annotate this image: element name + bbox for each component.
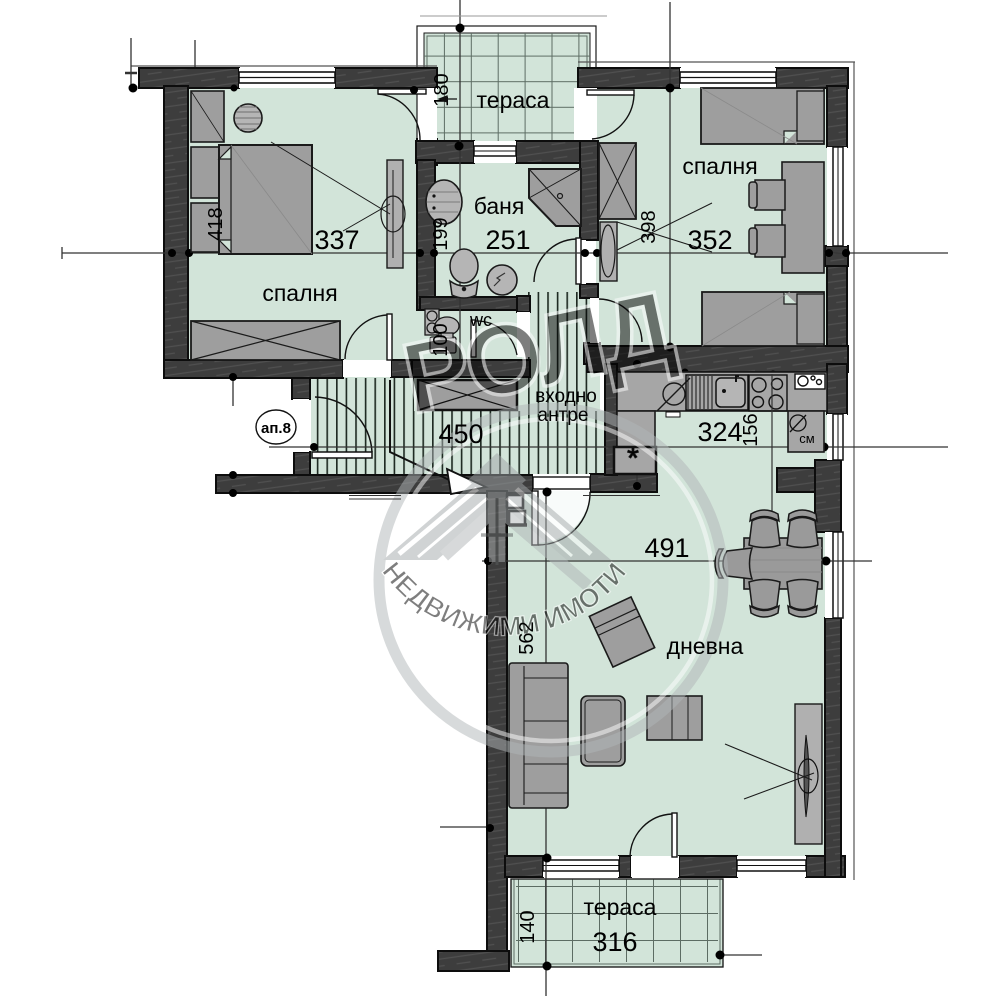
svg-text:100: 100: [430, 323, 452, 356]
svg-text:398: 398: [638, 210, 660, 243]
svg-text:156: 156: [740, 413, 762, 446]
svg-text:см: см: [799, 431, 815, 446]
svg-text:антре: антре: [538, 405, 589, 426]
svg-text:450: 450: [438, 419, 483, 449]
svg-text:180: 180: [431, 73, 453, 106]
svg-text:562: 562: [516, 621, 538, 654]
svg-text:*: *: [627, 442, 639, 475]
svg-text:251: 251: [485, 225, 530, 255]
svg-text:324: 324: [697, 417, 742, 447]
svg-text:дневна: дневна: [667, 633, 744, 659]
svg-text:wc: wc: [469, 310, 492, 330]
svg-text:спалня: спалня: [262, 280, 337, 306]
svg-text:352: 352: [687, 225, 732, 255]
svg-text:418: 418: [205, 207, 227, 240]
svg-text:491: 491: [644, 533, 689, 563]
svg-text:199: 199: [430, 217, 452, 250]
svg-text:140: 140: [517, 910, 539, 943]
svg-text:баня: баня: [474, 193, 525, 219]
svg-text:тераса: тераса: [477, 87, 550, 113]
svg-text:спалня: спалня: [682, 153, 757, 179]
svg-text:316: 316: [592, 927, 637, 957]
svg-text:тераса: тераса: [584, 894, 657, 920]
svg-text:ап.8: ап.8: [261, 420, 291, 437]
svg-text:входно: входно: [535, 386, 597, 407]
svg-text:337: 337: [314, 225, 359, 255]
